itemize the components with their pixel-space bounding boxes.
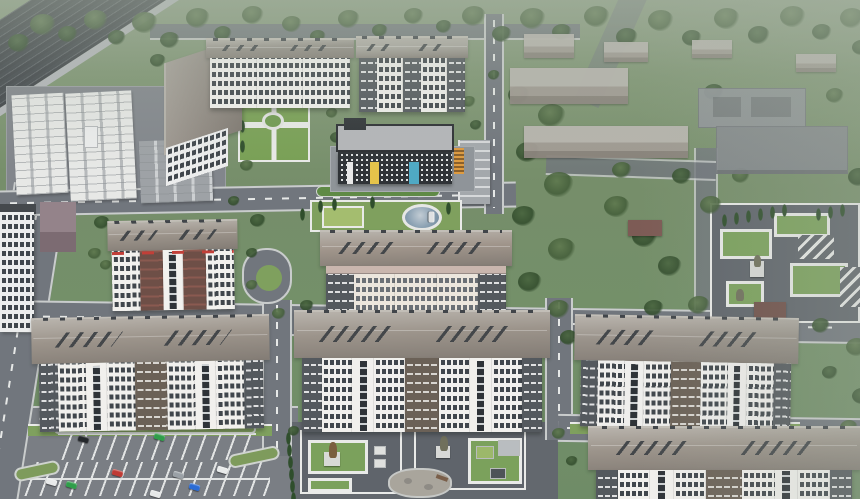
parked-car [429,212,435,223]
tree [688,296,710,314]
cypress-tree [318,200,323,213]
plaza-lawn [720,229,772,259]
garage-rows-east [65,90,137,201]
boulder [404,478,412,484]
roof-vents [164,330,233,346]
tree [186,8,210,28]
roof-vents [367,44,399,51]
south-plaza-west [300,430,402,494]
roof-vents [289,45,329,51]
brown-shed [628,220,662,236]
facade-segment-dark [580,360,599,426]
tree [326,108,338,118]
tree [250,214,266,227]
facade-segment-dark [773,364,792,430]
facade-segment-dark [830,470,851,499]
building-center-roof [320,230,512,266]
facade-segment-win [618,470,650,499]
facade-segment-win [395,266,437,314]
garden-ring [262,112,284,130]
low-building [604,42,648,62]
tree [470,120,482,130]
cypress-tree [770,206,775,219]
tree [282,16,302,32]
tree [544,172,574,197]
monument-statue [754,255,761,267]
tree [84,10,108,30]
building-top-L-right-wing [206,38,354,108]
apartment-block-s-roof [294,310,550,358]
roof-parapet [307,310,537,313]
facade-segment-win [597,360,625,426]
facade-segment-win [643,361,671,427]
tree [30,14,56,35]
apartment-block-se-facade [580,360,792,430]
garage-rows-west [11,93,68,196]
tree [492,26,512,42]
roof-vents [699,332,765,348]
facade-segment-dark [359,58,377,112]
facade-segment-dark [244,360,264,428]
tree [748,26,770,44]
playground-mat [476,446,494,459]
tree [848,168,860,186]
building-north-roof [356,36,468,58]
long-low-building [524,126,688,158]
tree [518,272,542,292]
facade-segment-brown [140,250,164,310]
tree [840,8,860,28]
apartment-block-far-se-roof [588,426,860,470]
tree [488,70,500,80]
cypress-tree [758,208,763,221]
monument-statue [440,436,448,451]
low-building [692,40,732,58]
facade-segment-win [210,58,256,108]
tree [714,8,740,29]
facade-segment-win [206,249,235,309]
tree [240,160,254,171]
cypress-tree [734,212,739,225]
kindergarten-facade [338,152,452,184]
facade-segment-win [58,363,87,431]
cypress-tree [446,202,451,215]
hall-building [510,68,628,104]
tree [552,428,566,439]
facade-segment-win [374,358,404,432]
facade-segment-win [354,266,396,314]
utility-building [40,202,76,252]
facade-segment-slot [727,363,748,429]
apartment-block-s [294,310,550,432]
facade-segment-win [377,58,403,112]
tree [436,20,452,33]
tree [242,6,264,24]
tree [612,162,632,178]
roof-vents [740,441,816,455]
cul-de-sac-island [256,265,282,291]
tree [566,456,578,466]
monument-statue [329,442,337,458]
roof-vents [179,230,217,240]
playground-center [322,206,364,228]
facade-segment-dark [302,358,322,432]
plaza-bench-pad [374,459,386,468]
cypress-tree [816,208,821,221]
monument-statue [736,289,744,301]
roof-parapet [114,219,231,224]
tree [58,26,78,42]
road-centerline [276,305,278,452]
tree [548,238,576,261]
facade-segment-win [437,266,479,314]
cypress-tree [828,206,833,219]
cypress-tree [722,214,727,227]
tree [846,338,860,356]
tree [700,196,722,214]
roof-vents [221,45,261,51]
facade-segment-brown [183,249,207,309]
facade-segment-dark [326,266,354,314]
school-building-north [698,88,806,128]
tree [132,12,158,33]
facade-segment-win [798,470,830,499]
facade-segment-slot [775,470,799,499]
tree [338,10,360,28]
facade-segment-dark [596,470,617,499]
building-north [356,36,468,112]
low-building [524,34,574,58]
sandpit [388,468,452,498]
building-north-facade [359,58,464,112]
fountain [402,204,442,231]
tree [246,248,258,258]
plaza-lawn [308,478,352,492]
building-center [320,230,512,314]
tree [644,300,664,316]
facade-segment-cdark [670,362,701,429]
tree [780,6,806,27]
facade-segment-slot [650,470,674,499]
roof-parapet [362,36,463,39]
tree [404,8,424,24]
cypress-tree [332,198,337,211]
tree [108,30,126,45]
facade-segment-win [746,363,774,429]
facade-segment-win [167,361,196,429]
apartment-block-se [573,314,799,430]
playground-pad [490,468,506,479]
cypress-tree [840,204,845,217]
west-edge-building [0,212,34,332]
facade-segment-dark [478,266,506,314]
tree [548,300,570,318]
roof-vents [615,441,691,455]
plaza-bench-pad [374,446,386,455]
log [436,474,449,482]
tree [272,308,286,319]
tree [812,24,832,40]
facade-segment-win [216,360,245,428]
road-centerline [493,20,495,208]
facade-segment-slot [195,361,217,429]
cypress-tree [370,196,375,209]
facade-segment-cdark [135,362,168,431]
facade-segment-win [303,58,349,108]
building-center-facade [326,266,507,314]
plaza-steps [798,235,834,259]
tree [88,248,102,259]
apartment-block-far-se-facade [596,470,852,499]
tree [228,196,240,206]
tree [8,34,30,52]
boulder [424,484,433,490]
facade-segment-win [107,362,136,430]
building-west-red-roof [107,219,238,251]
apartment-block-sw [31,314,271,432]
tree [604,196,630,217]
roof-vents [595,330,661,346]
facade-segment-win [674,470,706,499]
tree [852,40,860,55]
aerial-render-canvas [0,0,860,499]
facade-segment-dark [403,58,421,112]
facade-segment-cdark [706,470,743,499]
facade-segment-cdark [405,358,439,432]
facade-segment-win [257,58,303,108]
roof-vents [339,242,394,254]
facade-segment-dark [39,364,59,432]
building-west-red [107,219,239,311]
facade-segment-slot [86,363,108,431]
school-court [751,97,791,117]
roof-vents [319,326,393,342]
roof-parapet [602,426,847,429]
kindergarten-rooftop-unit [344,118,366,130]
kindergarten-orange-louver [454,148,464,174]
facade-accent-teal [409,162,419,184]
facade-segment-win [492,358,522,432]
roof-vents [436,326,510,342]
roof-vents [119,231,157,241]
facade-accent-yellow [370,162,379,184]
tree [672,168,692,184]
facade-segment-slot [624,361,645,427]
roof-parapet [330,230,503,233]
facade-segment-slot [352,358,374,432]
tree [822,366,838,379]
facade-segment-win [322,358,352,432]
facade-segment-win [742,470,774,499]
tree [246,280,258,290]
school-court [713,97,741,117]
building-top-L-right-wing-facade [210,58,349,108]
tree [520,8,546,29]
facade-segment-slot [162,250,184,310]
building-top-L-right-wing-roof [206,38,354,58]
cypress-tree [746,210,751,223]
facade-segment-dark [447,58,465,112]
facade-segment-slot [470,358,492,432]
plaza-lawn [774,213,830,237]
school-building-south [716,126,848,174]
cypress-tree [300,208,305,221]
roof-vents [418,44,450,51]
tree [648,10,674,31]
plaza-steps [840,267,860,307]
tree [658,256,682,276]
roof-vents [54,332,123,348]
tree [852,388,860,404]
tree [462,6,486,26]
apartment-block-sw-roof [31,314,270,364]
tree [160,32,180,48]
tree [584,6,610,27]
cypress-tree [291,492,296,499]
facade-segment-win [112,251,141,311]
facade-segment-dark [522,358,542,432]
apartment-block-s-facade [302,358,543,432]
tree [538,104,566,127]
tree [812,318,830,333]
tree [826,88,844,103]
roof-vents [427,242,482,254]
facade-segment-win [421,58,447,112]
low-building [796,54,836,72]
gatehouse [84,126,98,148]
building-west-red-facade [112,249,235,311]
parking-line [24,478,270,480]
facade-accent-white [347,162,353,184]
roof-parapet [213,38,346,41]
apartment-block-se-roof [574,314,799,364]
playground-pad [498,440,520,456]
cypress-tree [240,140,245,153]
cypress-tree [782,204,787,217]
apartment-block-sw-facade [39,360,264,432]
apartment-block-far-se [588,426,860,499]
facade-segment-win [700,362,728,428]
tree [512,206,536,226]
facade-segment-win [439,358,469,432]
